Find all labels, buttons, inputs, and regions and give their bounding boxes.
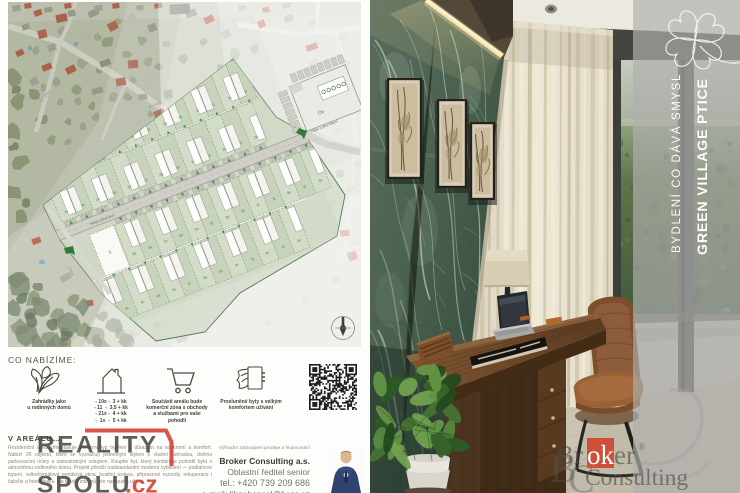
svg-text:.cz: .cz: [125, 472, 158, 493]
svg-text:®: ®: [638, 442, 646, 453]
svg-text:GREEN VILLAGE PTICE: GREEN VILLAGE PTICE: [695, 78, 711, 255]
svg-text:REALITY: REALITY: [37, 432, 159, 459]
svg-text:Consulting: Consulting: [585, 465, 688, 491]
svg-text:BYDLENÍ CO DÁVÁ SMYSL: BYDLENÍ CO DÁVÁ SMYSL: [670, 73, 683, 253]
svg-text:SPOLU: SPOLU: [37, 472, 131, 493]
svg-text:Br: Br: [556, 440, 583, 470]
